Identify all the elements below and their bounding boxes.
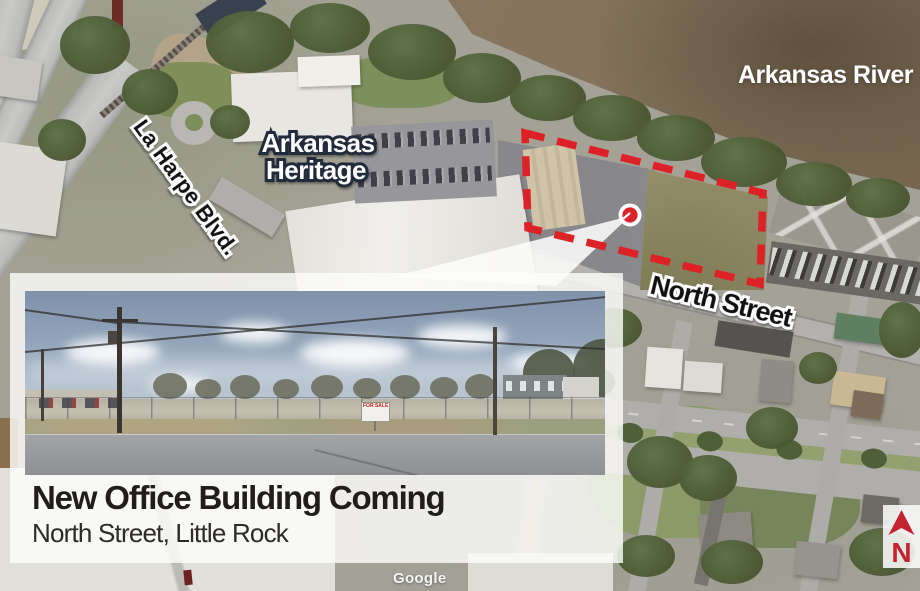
tree (799, 352, 837, 384)
tree (846, 178, 910, 218)
foreground-road (25, 434, 605, 475)
tree (701, 137, 787, 187)
tree (353, 378, 381, 399)
house (793, 541, 840, 579)
for-sale-sign-text: FOR SALE (363, 404, 388, 409)
house (758, 359, 794, 404)
tree (368, 24, 456, 80)
building (683, 361, 723, 394)
tree (679, 455, 737, 501)
tree (701, 540, 763, 584)
tree (122, 69, 178, 115)
tree (746, 407, 798, 449)
utility-pole (493, 327, 497, 435)
parking-lot-cars (351, 119, 497, 203)
for-sale-sign: FOR SALE (361, 402, 390, 422)
utility-pole (117, 307, 122, 433)
compass-letter: N (891, 537, 911, 568)
building (645, 347, 684, 389)
tree (390, 375, 420, 399)
building (0, 55, 43, 102)
tree (195, 379, 221, 399)
tree (617, 535, 675, 577)
callout-subtitle: North Street, Little Rock (32, 518, 288, 549)
aerial-map-graphic: Arkansas River Arkansas Heritage La Harp… (0, 0, 920, 591)
tree (38, 119, 86, 161)
tree (879, 302, 920, 358)
tree (465, 374, 495, 399)
tree (430, 377, 458, 399)
tree (153, 373, 187, 399)
median-tree (696, 430, 724, 453)
tree (311, 375, 343, 399)
google-watermark: Google (393, 570, 446, 587)
distant-building (563, 377, 599, 399)
utility-pole (41, 349, 44, 421)
heritage-annex (297, 55, 360, 87)
callout-title: New Office Building Coming (32, 479, 444, 517)
inset-callout-panel: FOR SALE New Office Building Coming Nort… (10, 273, 623, 563)
north-arrow-icon: N (883, 505, 920, 568)
tree (60, 16, 130, 74)
north-compass: N (883, 505, 920, 568)
median-tree (860, 447, 888, 470)
tree (210, 105, 250, 139)
house (850, 390, 883, 420)
parcel-building (523, 143, 586, 231)
tree (290, 3, 370, 53)
tree (776, 162, 852, 206)
tree (230, 375, 260, 399)
tree (206, 11, 294, 73)
tree (273, 379, 299, 399)
parked-cars (39, 398, 117, 408)
cloud (300, 339, 410, 367)
car (183, 570, 193, 586)
street-view-photo: FOR SALE (25, 291, 605, 475)
